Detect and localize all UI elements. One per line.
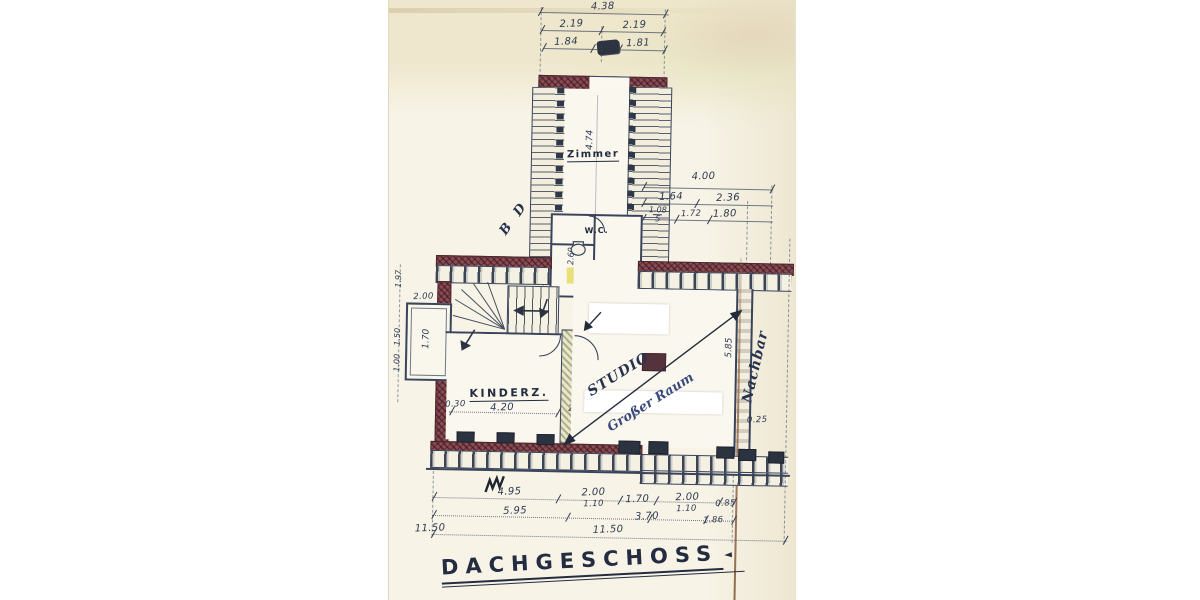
scanned-paper: 4.38 2.19 2.19 1.84 1.81 4.74 Zimmer 4.0… bbox=[388, 0, 796, 600]
door-arcs bbox=[539, 215, 605, 360]
toilet-icon bbox=[571, 242, 585, 256]
ink-smudge bbox=[486, 476, 504, 492]
floor-plan: 4.38 2.19 2.19 1.84 1.81 4.74 Zimmer 4.0… bbox=[384, 0, 801, 600]
screenshot-root: 4.38 2.19 2.19 1.84 1.81 4.74 Zimmer 4.0… bbox=[0, 0, 1200, 600]
stair-winder-fan bbox=[453, 281, 506, 329]
stair-direction-arrow bbox=[461, 298, 549, 352]
title-arrow-flourish: ◄ bbox=[724, 549, 732, 560]
plan-linework-svg bbox=[384, 0, 801, 600]
studio-annotation-arrow bbox=[564, 308, 741, 448]
